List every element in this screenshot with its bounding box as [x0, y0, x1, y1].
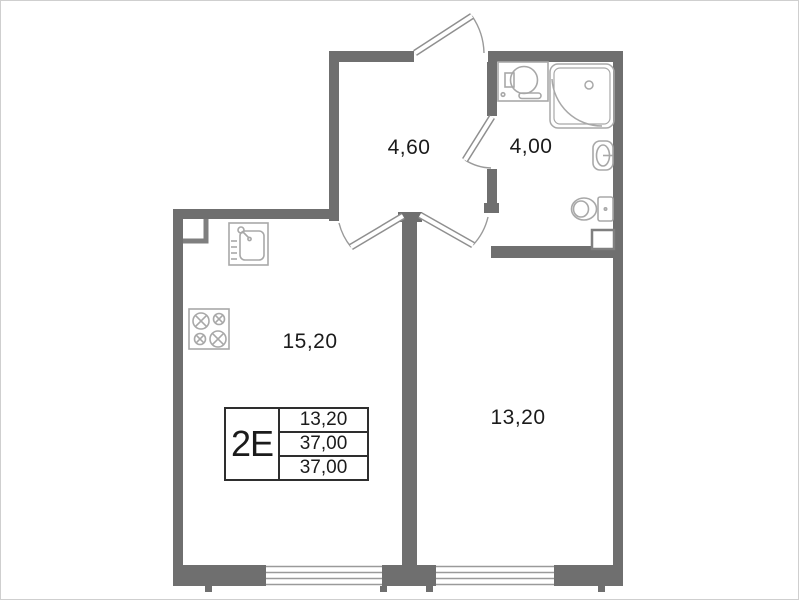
- unit-stats-column: 13,20 37,00 37,00: [280, 409, 367, 479]
- entry-door: [415, 16, 484, 53]
- stove-icon: [189, 309, 229, 349]
- room-area-label-hall: 4,60: [388, 136, 431, 160]
- washing-machine-icon: [498, 62, 548, 101]
- walls: [173, 51, 623, 592]
- vent-shaft-icon: [592, 230, 614, 249]
- floor-plan-drawing: [1, 1, 799, 600]
- corner-shower-icon: [550, 64, 614, 128]
- unit-type-label: 2E: [226, 409, 280, 479]
- room-area-label-kitchen-living: 15,20: [282, 330, 337, 354]
- floor-plan-canvas: 4,60 4,00 15,20 13,20 2E 13,20 37,00 37,…: [0, 0, 799, 600]
- unit-total-area: 37,00: [280, 457, 367, 479]
- room-window: [436, 567, 554, 585]
- room-area-label-room: 13,20: [490, 406, 545, 430]
- kitchen-door: [339, 216, 403, 247]
- kitchen-window: [266, 567, 382, 585]
- room-door: [420, 215, 488, 245]
- toilet-icon: [572, 197, 614, 221]
- washbasin-icon: [593, 141, 613, 170]
- vent-duct-icon: [183, 219, 206, 241]
- unit-info-table: 2E 13,20 37,00 37,00: [224, 407, 369, 481]
- unit-living-area: 13,20: [280, 409, 367, 433]
- kitchen-sink-icon: [229, 223, 268, 265]
- bathroom-door: [465, 117, 492, 168]
- room-area-label-bathroom: 4,00: [510, 135, 553, 159]
- unit-area: 37,00: [280, 433, 367, 457]
